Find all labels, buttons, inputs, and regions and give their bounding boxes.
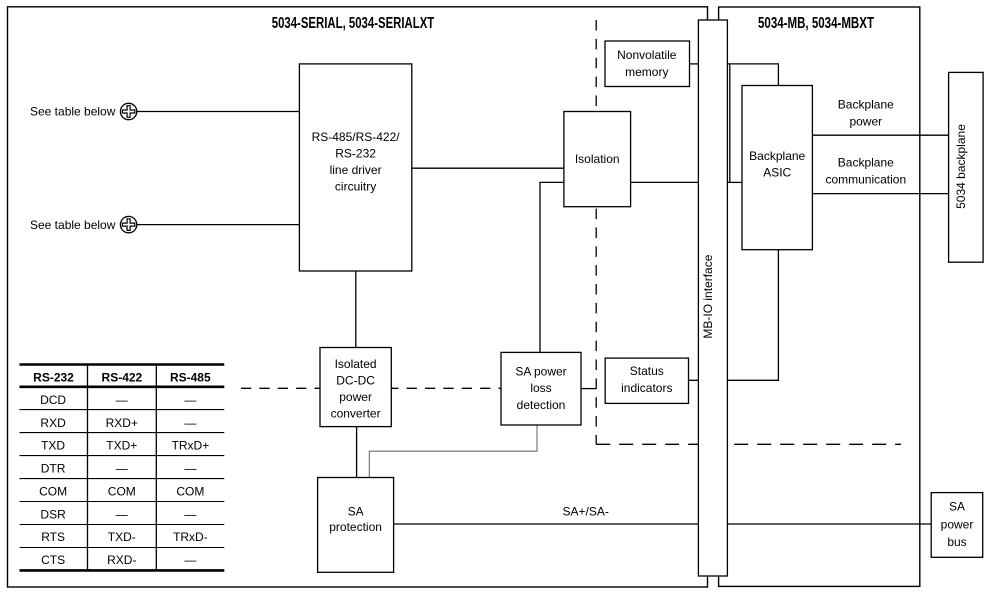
svg-text:power: power [339,390,372,404]
svg-text:—: — [116,507,128,521]
svg-text:DSR: DSR [40,507,66,521]
svg-text:—: — [184,416,196,430]
svg-text:COM: COM [176,484,204,498]
svg-text:SA: SA [348,505,364,519]
svg-text:DTR: DTR [41,462,66,476]
svg-text:Nonvolatile: Nonvolatile [617,48,677,62]
svg-text:DCD: DCD [40,393,66,407]
svg-text:TXD-: TXD- [108,530,136,544]
svg-text:5034-SERIAL, 5034-SERIALXT: 5034-SERIAL, 5034-SERIALXT [272,15,435,32]
svg-text:ASIC: ASIC [763,165,791,179]
svg-text:—: — [184,462,196,476]
svg-text:Backplane: Backplane [838,98,894,112]
svg-text:communication: communication [825,173,906,187]
svg-text:RS-422: RS-422 [102,370,143,384]
svg-text:power: power [849,115,882,129]
svg-text:5034-MB, 5034-MBXT: 5034-MB, 5034-MBXT [758,15,874,32]
svg-text:DC-DC: DC-DC [336,374,375,388]
svg-text:TRxD+: TRxD+ [172,439,210,453]
svg-text:protection: protection [329,520,382,534]
svg-text:RTS: RTS [41,530,65,544]
svg-text:Status: Status [630,364,664,378]
svg-text:RXD+: RXD+ [106,416,138,430]
svg-text:RS-485: RS-485 [170,370,211,384]
svg-text:TXD+: TXD+ [106,439,137,453]
svg-text:CTS: CTS [41,553,65,567]
svg-text:SA: SA [949,500,965,514]
svg-text:memory: memory [625,65,668,79]
svg-text:—: — [116,462,128,476]
svg-text:COM: COM [108,484,136,498]
svg-text:See table below: See table below [30,105,116,119]
svg-text:SA+/SA-: SA+/SA- [563,505,609,519]
svg-text:RS-232: RS-232 [33,370,74,384]
svg-text:circuitry: circuitry [335,179,376,193]
svg-text:MB-IO interface: MB-IO interface [701,254,715,338]
svg-text:SA power: SA power [515,364,566,378]
svg-text:—: — [184,507,196,521]
svg-text:—: — [184,393,196,407]
svg-text:TRxD-: TRxD- [173,530,208,544]
svg-text:RXD-: RXD- [107,553,136,567]
svg-text:bus: bus [947,535,966,549]
svg-text:RS-485/RS-422/: RS-485/RS-422/ [312,130,401,144]
svg-text:line driver: line driver [330,163,382,177]
svg-text:Isolated: Isolated [335,357,377,371]
svg-text:detection: detection [517,398,566,412]
svg-text:5034 backplane: 5034 backplane [954,124,968,209]
svg-text:COM: COM [39,484,67,498]
svg-text:—: — [116,393,128,407]
svg-text:TXD: TXD [41,439,65,453]
svg-text:—: — [184,553,196,567]
svg-text:Backplane: Backplane [749,149,805,163]
svg-text:See table below: See table below [30,218,116,232]
svg-text:RS-232: RS-232 [335,147,376,161]
svg-text:indicators: indicators [621,381,672,395]
svg-text:power: power [941,518,974,532]
svg-text:loss: loss [530,381,551,395]
svg-text:RXD: RXD [40,416,66,430]
svg-text:Backplane: Backplane [838,155,894,169]
svg-text:Isolation: Isolation [575,152,620,166]
svg-text:converter: converter [331,406,381,420]
